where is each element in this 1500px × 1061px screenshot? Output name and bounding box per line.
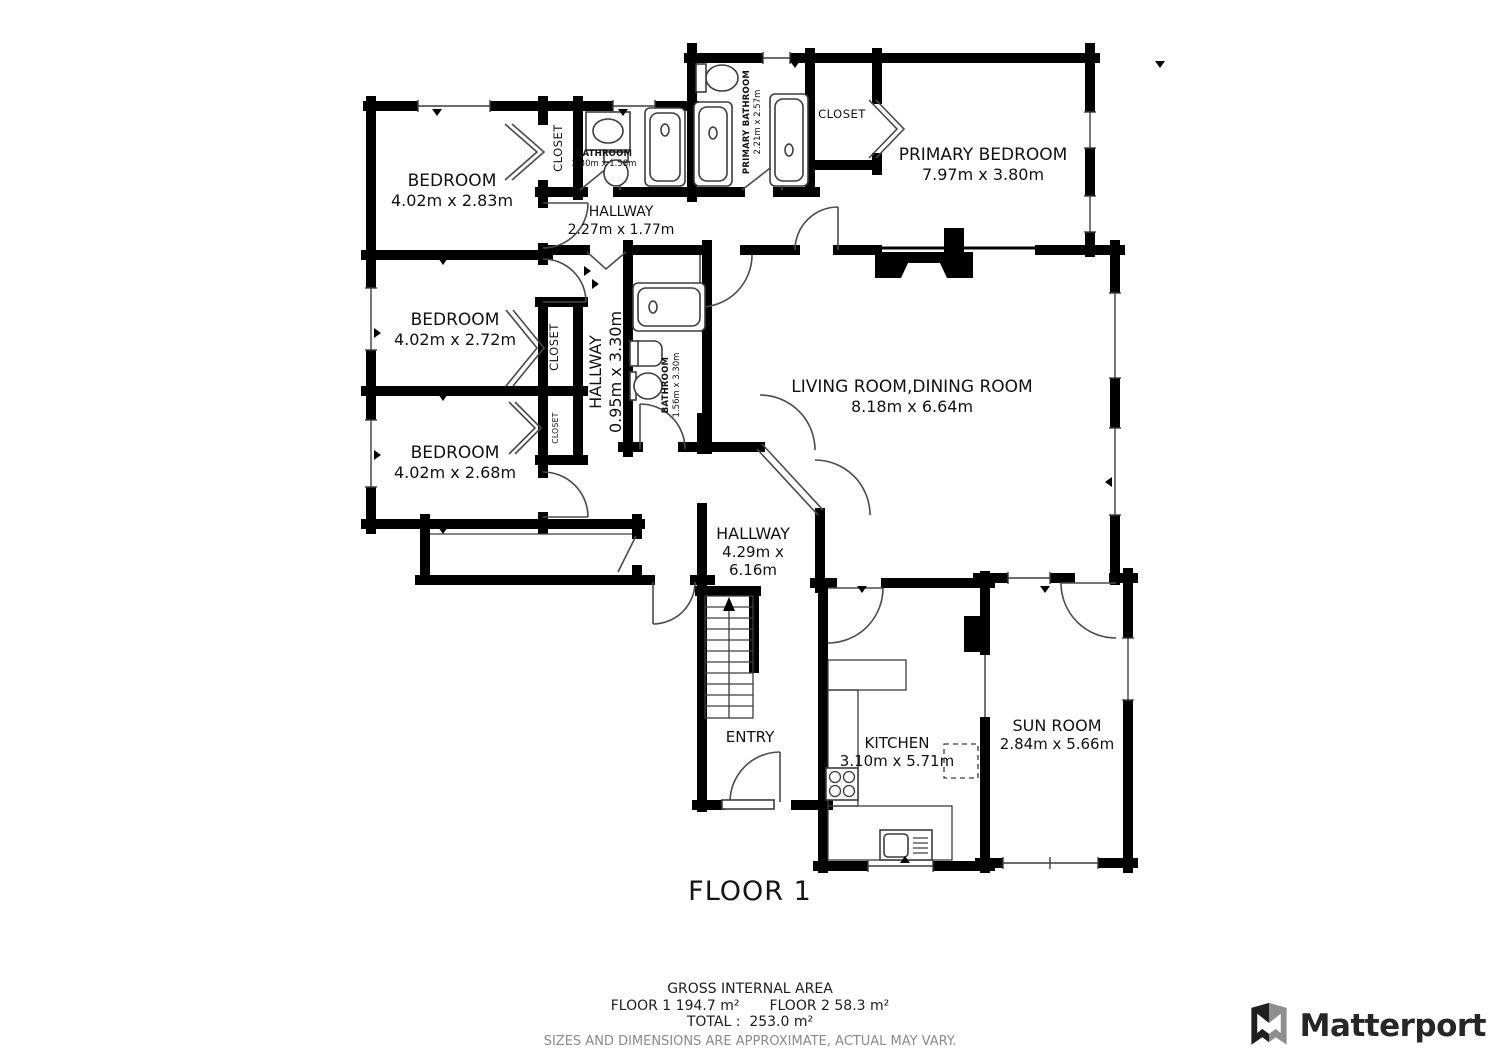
room-label-bedroom2-dims: 4.02m x 2.72m bbox=[394, 330, 516, 349]
room-label-primary-bathroom-dims: 2.21m x 2.57m bbox=[753, 90, 763, 155]
matterport-logo-text: Matterport bbox=[1300, 1008, 1486, 1044]
room-label-hallway-top-dims: 2.27m x 1.77m bbox=[568, 222, 675, 238]
room-label-closet-bedroom2: CLOSET bbox=[547, 323, 561, 371]
window bbox=[1003, 857, 1098, 869]
window bbox=[868, 860, 933, 872]
window bbox=[763, 52, 790, 64]
room-label-closet-bedroom1: CLOSET bbox=[551, 124, 565, 172]
room-label-kitchen-name: KITCHEN bbox=[865, 734, 930, 752]
room-label-kitchen-dims: 3.10m x 5.71m bbox=[840, 752, 954, 770]
kitchen-pillar bbox=[964, 616, 988, 652]
room-label-closet-primary: CLOSET bbox=[818, 107, 866, 121]
door-bedroom2 bbox=[543, 259, 586, 302]
door-kitchen bbox=[828, 588, 883, 643]
interior-window bbox=[980, 655, 990, 717]
window bbox=[1008, 572, 1050, 584]
room-label-bedroom1-dims: 4.02m x 2.83m bbox=[391, 191, 513, 210]
floor-plan-canvas: BEDROOM 4.02m x 2.83m BEDROOM 4.02m x 2.… bbox=[0, 0, 1500, 960]
toilet-tank-primary bbox=[696, 64, 706, 92]
room-label-bedroom3-name: BEDROOM bbox=[411, 443, 500, 463]
room-label-bathroom-top-dims: 2.30m x 1.58m bbox=[572, 159, 637, 169]
door-bedroom3 bbox=[543, 472, 588, 517]
window bbox=[1084, 196, 1096, 232]
stairs-up-arrow-icon bbox=[723, 597, 735, 611]
matterport-branding: Matterport bbox=[1248, 1002, 1486, 1049]
room-label-bathroom-mid-name: BATHROOM bbox=[661, 357, 671, 413]
room-label-entry: ENTRY bbox=[726, 728, 775, 746]
window bbox=[418, 100, 490, 112]
floorplan-page: BEDROOM 4.02m x 2.83m BEDROOM 4.02m x 2.… bbox=[0, 0, 1500, 1061]
door-corridor-exterior bbox=[653, 582, 695, 624]
room-label-hallway-main-name: HALLWAY bbox=[716, 524, 790, 543]
room-label-sun-room-dims: 2.84m x 5.66m bbox=[1000, 735, 1114, 753]
bifold-hallway bbox=[587, 252, 626, 269]
toilet-primary bbox=[706, 65, 738, 91]
bifold-closet-bedroom1 bbox=[505, 124, 544, 180]
window bbox=[1084, 112, 1096, 148]
room-label-closet-bedroom3: CLOSET bbox=[551, 412, 560, 444]
room-label-primary-bathroom-name: PRIMARY BATHROOM bbox=[742, 70, 752, 174]
room-label-sun-room-name: SUN ROOM bbox=[1012, 716, 1101, 735]
kitchen-counter-upper bbox=[828, 660, 906, 690]
bifold-closet-bedroom3 bbox=[509, 402, 541, 454]
floor2-area: FLOOR 2 58.3 m² bbox=[769, 998, 889, 1015]
room-label-primary-bedroom-name: PRIMARY BEDROOM bbox=[899, 145, 1068, 165]
door-primary-bedroom bbox=[795, 207, 838, 250]
room-label-bedroom2-name: BEDROOM bbox=[411, 310, 500, 330]
room-label-hallway-top-name: HALLWAY bbox=[589, 204, 654, 220]
window bbox=[1109, 293, 1121, 378]
room-label-bedroom1-name: BEDROOM bbox=[408, 171, 497, 191]
matterport-logo-icon bbox=[1248, 1002, 1290, 1049]
room-label-hallway-main-dims1: 4.29m x bbox=[722, 543, 784, 561]
fireplace-notch bbox=[901, 263, 947, 278]
room-label-hallway-mid-name: HALLWAY bbox=[586, 335, 605, 409]
room-label-bathroom-mid-dims: 1.56m x 3.30m bbox=[672, 353, 682, 418]
room-label-living-dims: 8.18m x 6.64m bbox=[851, 397, 973, 416]
entry-threshold bbox=[722, 800, 774, 809]
room-label-living-name: LIVING ROOM,DINING ROOM bbox=[791, 377, 1032, 397]
room-label-hallway-mid-dims: 0.95m x 3.30m bbox=[606, 311, 625, 433]
window bbox=[1109, 428, 1121, 515]
room-label-bathroom-top-name: BATHROOM bbox=[576, 149, 632, 159]
room-label-hallway-main-dims2: 6.16m bbox=[729, 561, 777, 579]
chimney bbox=[944, 228, 964, 254]
floor-title: FLOOR 1 bbox=[0, 876, 1500, 907]
door-sun-room bbox=[1061, 583, 1116, 638]
room-label-primary-bedroom-dims: 7.97m x 3.80m bbox=[922, 165, 1044, 184]
door-entry bbox=[730, 752, 780, 802]
window bbox=[1122, 638, 1134, 700]
room-label-bedroom3-dims: 4.02m x 2.68m bbox=[394, 463, 516, 482]
staircase bbox=[705, 596, 753, 718]
window bbox=[365, 288, 377, 350]
floor1-area: FLOOR 1 194.7 m² bbox=[611, 998, 740, 1015]
area-title: GROSS INTERNAL AREA bbox=[0, 981, 1500, 998]
